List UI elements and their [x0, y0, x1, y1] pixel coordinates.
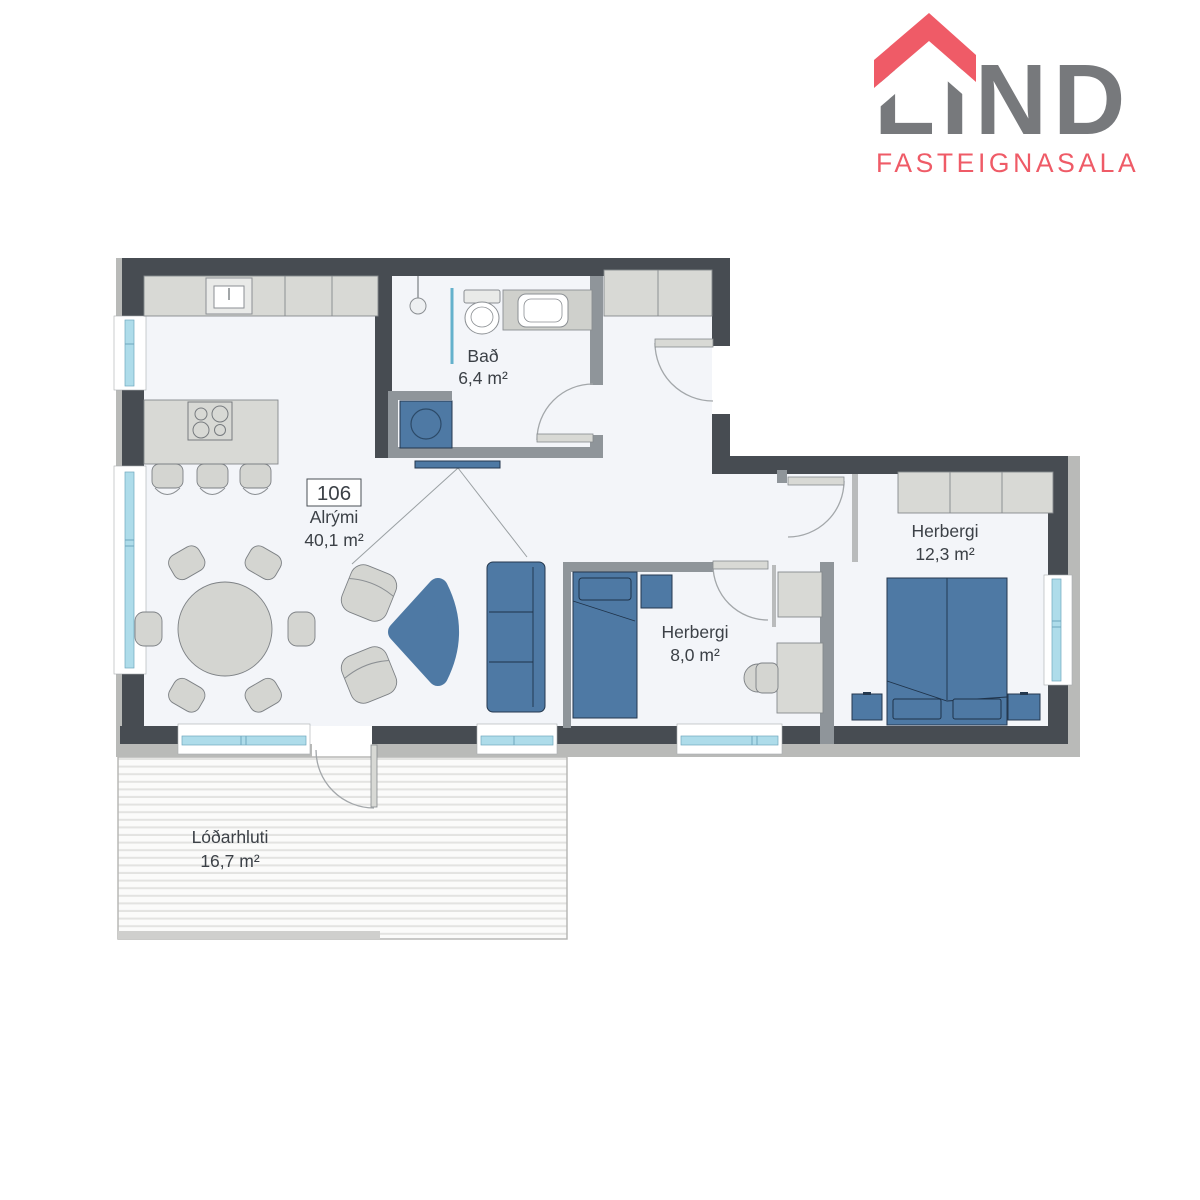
kitchen-counter: [144, 276, 378, 316]
laundry-niche-wall: [388, 391, 452, 400]
vanity-sink: [503, 290, 592, 330]
kitchen-island: [144, 400, 278, 464]
sofa: [487, 562, 545, 712]
unit-number: 106: [317, 482, 351, 505]
bath-name: Bað: [467, 346, 498, 366]
cabinet: [778, 572, 822, 617]
bedroom-large-west-wall: [852, 474, 858, 562]
entrance-wardrobe: [604, 270, 712, 316]
window-living-left: [178, 724, 310, 754]
patio-name: Lóðarhluti: [192, 827, 269, 847]
window-living-right: [477, 724, 557, 754]
door-stub: [777, 470, 787, 483]
bedroom-small-left-wall: [563, 562, 571, 728]
bedroom-small-top-wall: [563, 562, 713, 572]
window-bedroom-small: [677, 724, 782, 754]
deck-edge: [118, 931, 380, 939]
nightstand: [852, 692, 882, 720]
patio-deck: [118, 757, 567, 939]
patio-area: 16,7 m²: [200, 851, 259, 871]
window-right-bedroom: [1044, 575, 1072, 685]
window-left-upper: [114, 316, 146, 390]
floor-plan-canvas: LIND FASTEIGNASALA: [0, 0, 1200, 1200]
nightstand: [1008, 692, 1040, 720]
living-name: Alrými: [310, 507, 359, 527]
floor-plan-page: LIND FASTEIGNASALA: [0, 0, 1200, 1200]
bedroom-large-area: 12,3 m²: [915, 544, 974, 564]
bedroom-small-area: 8,0 m²: [670, 645, 720, 665]
bedroom-large-name: Herbergi: [911, 521, 978, 541]
dining-table: [178, 582, 272, 676]
hall-wall: [388, 447, 603, 458]
desk: [777, 643, 823, 713]
kitchen-sink: [206, 278, 252, 314]
toilet: [464, 290, 500, 334]
logo-subtitle: FASTEIGNASALA: [876, 148, 1139, 178]
desk-chair: [744, 663, 778, 693]
single-bed: [573, 572, 637, 718]
wardrobe: [898, 472, 1053, 513]
washing-machine: [400, 401, 452, 448]
bedroom-small-name: Herbergi: [661, 622, 728, 642]
logo: LIND FASTEIGNASALA: [874, 13, 1139, 178]
living-area: 40,1 m²: [304, 530, 363, 550]
side-table: [641, 575, 672, 608]
bath-area: 6,4 m²: [458, 368, 508, 388]
double-bed: [887, 578, 1007, 725]
